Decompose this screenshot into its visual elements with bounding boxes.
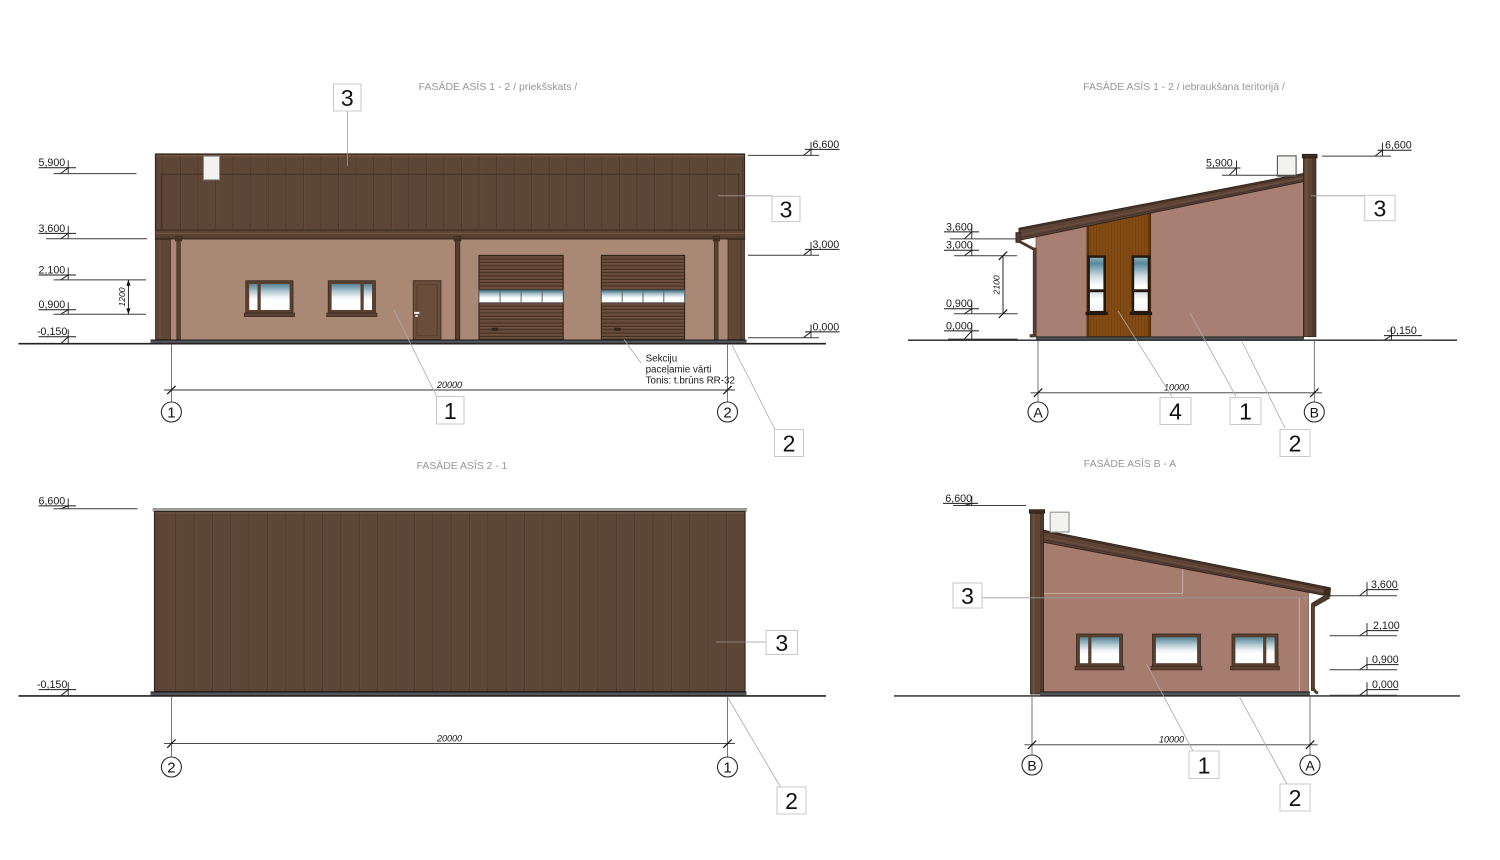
svg-text:1: 1 [723, 759, 731, 776]
svg-text:2: 2 [1289, 431, 1302, 457]
svg-text:2: 2 [167, 759, 175, 776]
svg-text:2: 2 [1289, 785, 1302, 811]
svg-text:3: 3 [341, 85, 354, 111]
svg-text:10000: 10000 [1164, 382, 1189, 392]
svg-text:Tonis: t.brūns RR-32: Tonis: t.brūns RR-32 [646, 376, 735, 387]
svg-text:Sekciju: Sekciju [646, 354, 678, 365]
svg-text:paceļamie vārti: paceļamie vārti [646, 365, 712, 376]
svg-text:FASĀDE ASĪS 1 - 2 / priekšskat: FASĀDE ASĪS 1 - 2 / priekšskats / [419, 81, 578, 93]
svg-text:A: A [1033, 404, 1043, 420]
svg-text:B: B [1027, 757, 1036, 773]
svg-text:A: A [1305, 757, 1315, 773]
svg-text:FASĀDE ASĪS 1 - 2 / iebraukšan: FASĀDE ASĪS 1 - 2 / iebraukšana teritori… [1083, 81, 1285, 93]
svg-text:1: 1 [167, 404, 175, 421]
svg-text:1: 1 [444, 398, 457, 424]
svg-text:4: 4 [1169, 399, 1182, 425]
svg-text:3: 3 [961, 583, 974, 609]
svg-text:FASĀDE ASĪS 2 - 1: FASĀDE ASĪS 2 - 1 [417, 460, 508, 472]
svg-text:2: 2 [783, 431, 796, 457]
svg-text:1200: 1200 [117, 287, 127, 306]
svg-text:2: 2 [785, 788, 798, 814]
svg-text:FASĀDE ASĪS B - A: FASĀDE ASĪS B - A [1084, 458, 1176, 470]
svg-text:3: 3 [1374, 196, 1387, 222]
svg-text:1: 1 [1239, 399, 1252, 425]
svg-text:1: 1 [1198, 752, 1211, 778]
svg-text:20000: 20000 [436, 733, 462, 743]
svg-text:2: 2 [723, 404, 731, 421]
svg-text:3: 3 [775, 630, 788, 656]
svg-text:10000: 10000 [1159, 734, 1184, 744]
svg-text:2100: 2100 [991, 275, 1001, 295]
svg-text:20000: 20000 [436, 380, 462, 390]
svg-text:3: 3 [780, 196, 793, 222]
svg-text:B: B [1310, 404, 1319, 420]
